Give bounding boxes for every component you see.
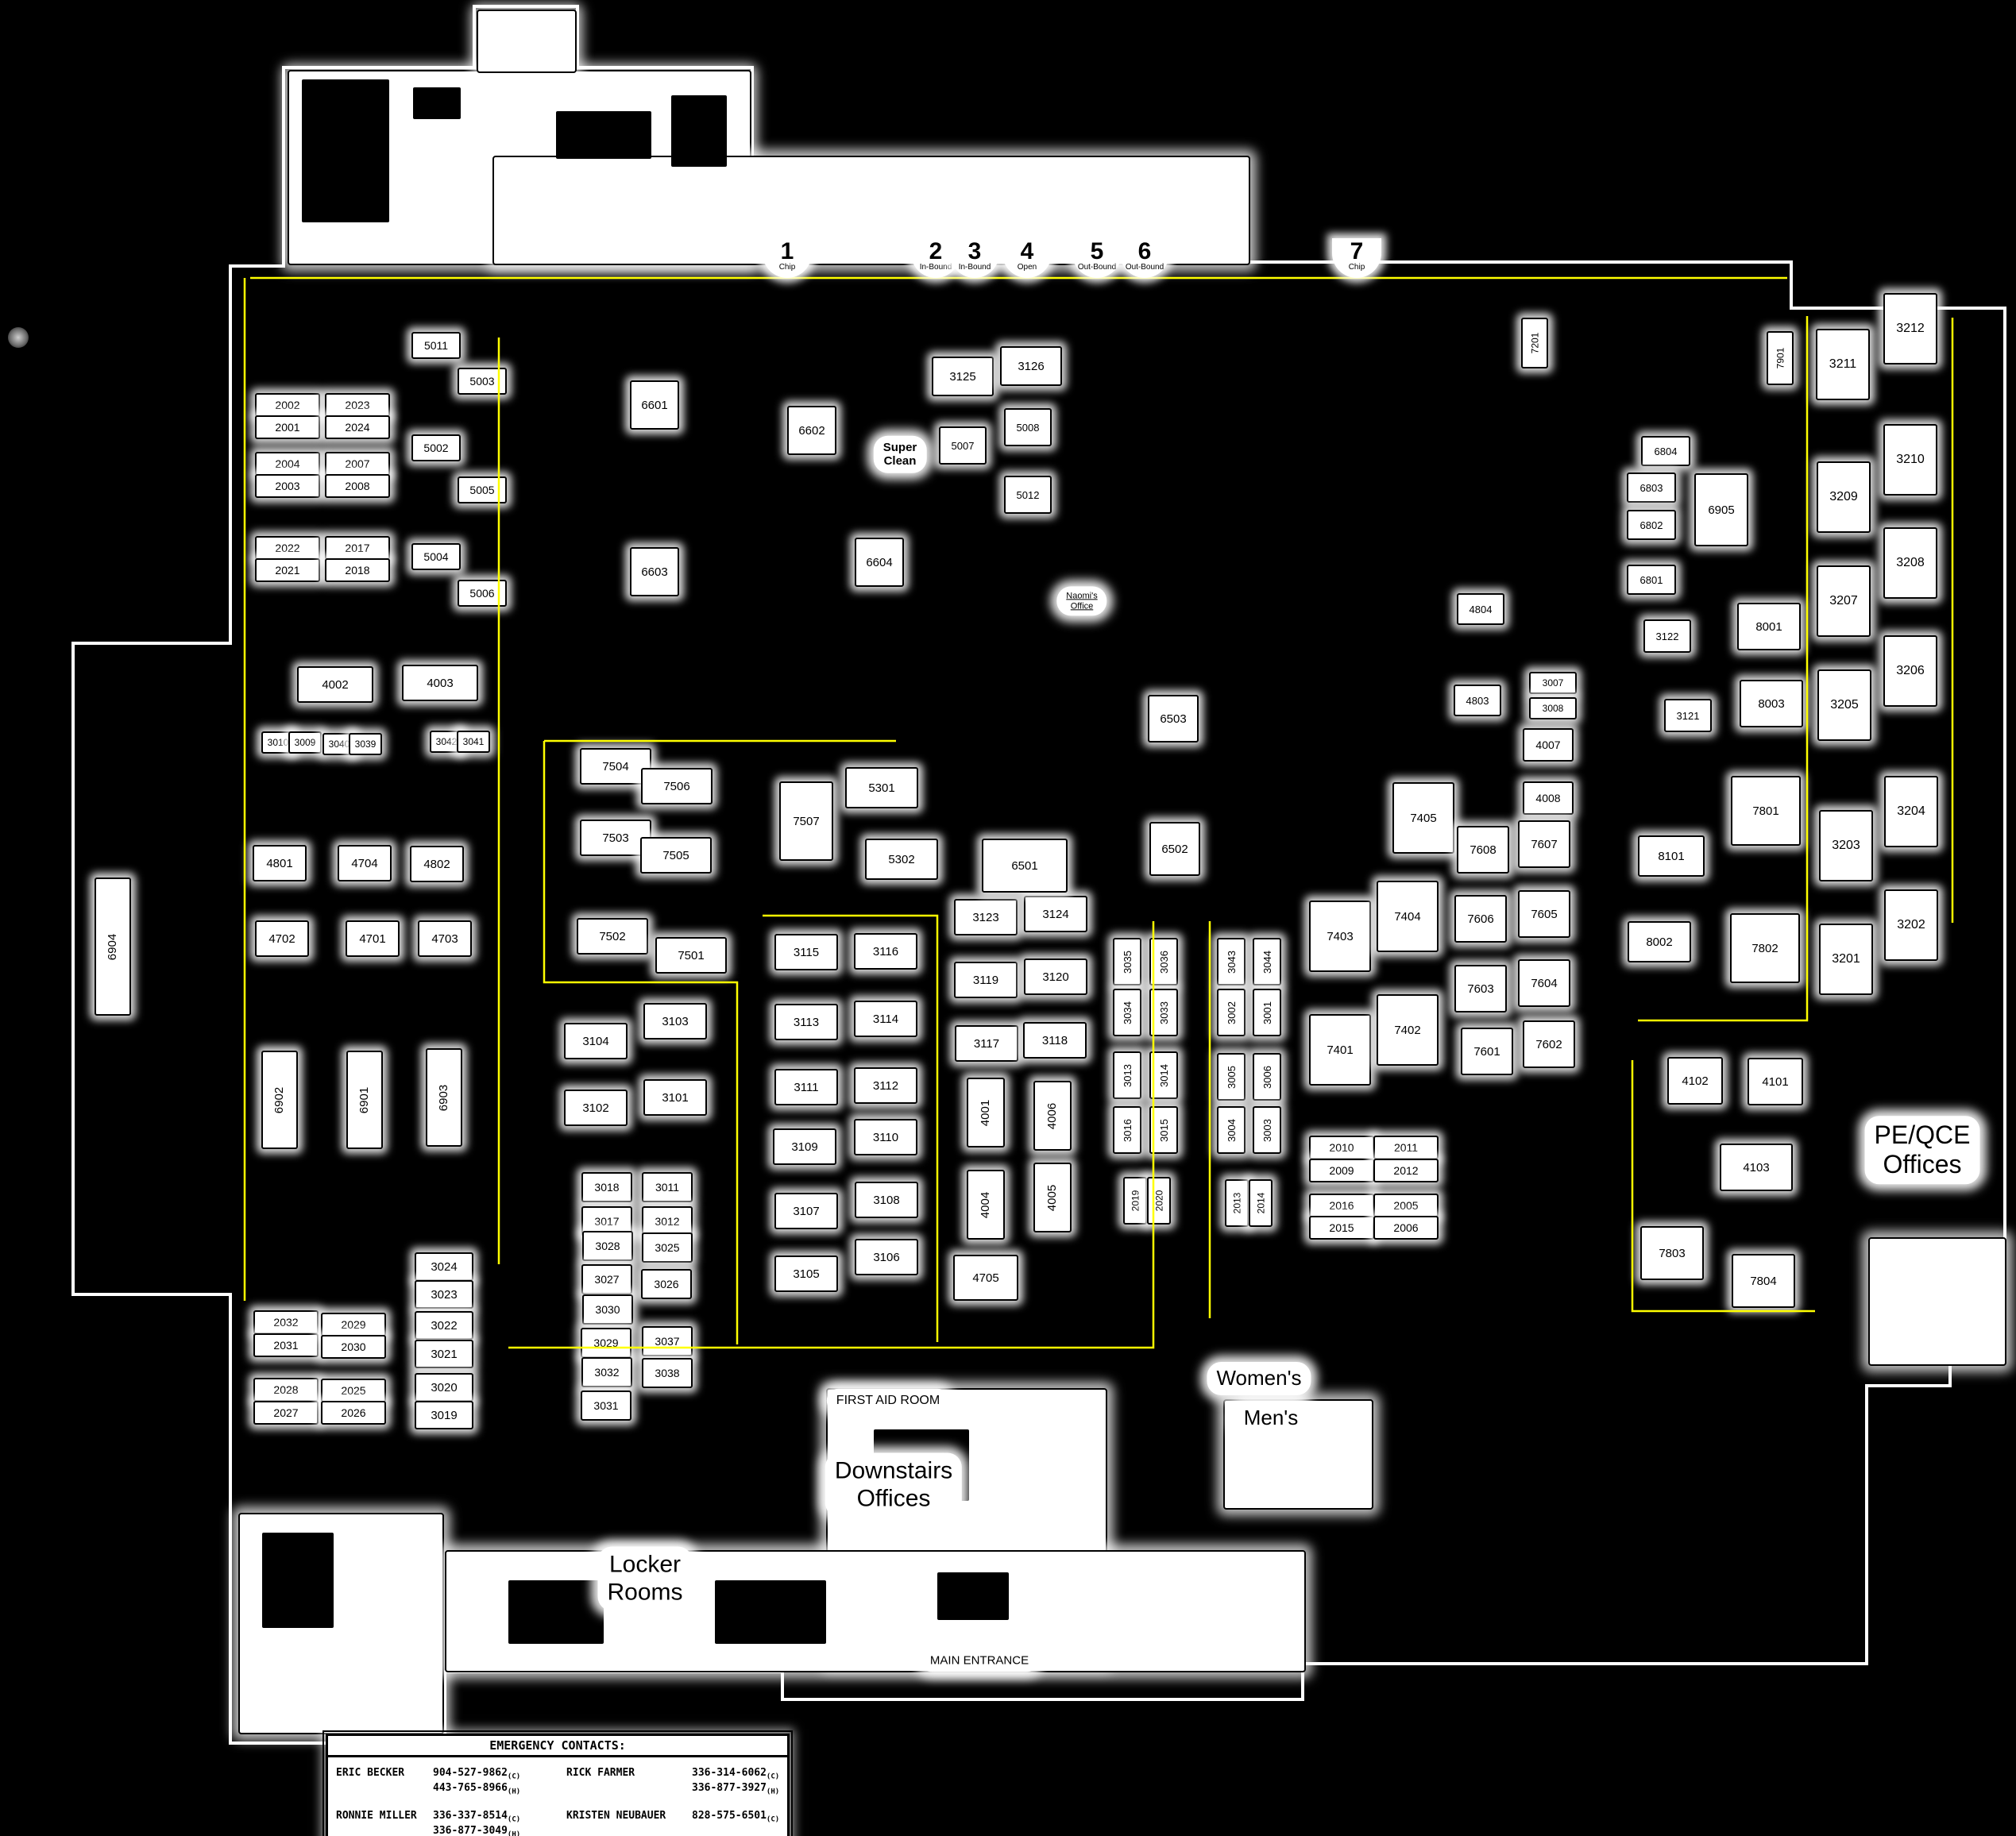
room-number: 2023 [345, 399, 369, 411]
room-number: 3019 [431, 1410, 457, 1421]
room-number: 3114 [873, 1013, 898, 1025]
room-number: 2020 [1154, 1190, 1164, 1212]
room-number: 3118 [1042, 1035, 1068, 1047]
room-number: 2007 [345, 458, 369, 469]
room-8003: 8003 [1740, 680, 1803, 727]
room-5007: 5007 [939, 426, 987, 465]
room-number: 7605 [1531, 908, 1557, 920]
room-3041: 3041 [457, 731, 490, 753]
room-number: 2003 [275, 480, 299, 492]
room-number: 5007 [952, 441, 975, 451]
smudge-dot [8, 327, 29, 348]
room-number: 3204 [1897, 805, 1925, 818]
room-number: 5008 [1017, 422, 1040, 433]
room-number: 6603 [641, 566, 667, 578]
room-number: 3042 [436, 737, 458, 746]
room-number: 7804 [1750, 1275, 1776, 1287]
phone-type: (C) [767, 1773, 779, 1781]
room-number: 3115 [794, 947, 819, 958]
room-7602: 7602 [1523, 1020, 1575, 1068]
room-number: 3016 [1122, 1119, 1132, 1142]
room-number: 2028 [273, 1384, 298, 1395]
room-number: 3126 [1018, 361, 1044, 372]
room-number: 7606 [1467, 913, 1493, 925]
room-3104: 3104 [564, 1023, 628, 1059]
room-number: 7602 [1535, 1039, 1562, 1051]
room-number: 2009 [1329, 1165, 1354, 1176]
room-7505: 7505 [640, 837, 712, 874]
room-7603: 7603 [1454, 965, 1507, 1012]
room-3025: 3025 [642, 1232, 693, 1263]
room-8101: 8101 [1638, 835, 1705, 877]
room-number: 2022 [275, 542, 299, 553]
room-number: 3117 [974, 1038, 999, 1050]
room-number: 3029 [593, 1337, 618, 1348]
room-number: 3212 [1896, 322, 1925, 335]
room-number: 3103 [662, 1016, 688, 1028]
room-number: 4102 [1682, 1075, 1708, 1087]
room-number: 3010 [268, 738, 289, 747]
room-3113: 3113 [774, 1004, 838, 1040]
room-6503: 6503 [1148, 695, 1199, 742]
room-number: 6602 [798, 425, 825, 437]
room-number: 6902 [274, 1086, 286, 1113]
label-downstairs-offices: Downstairs Offices [825, 1453, 962, 1518]
room-number: 7404 [1394, 911, 1420, 923]
room-number: 2011 [1394, 1142, 1418, 1153]
room-number: 3108 [873, 1194, 899, 1206]
room-number: 3026 [654, 1279, 678, 1290]
room-3110: 3110 [854, 1119, 917, 1155]
fixture [556, 111, 651, 159]
room-number: 3024 [431, 1261, 457, 1273]
room-number: 4002 [322, 679, 348, 691]
room-number: 3027 [594, 1274, 619, 1285]
room-2005: 2005 [1373, 1194, 1439, 1217]
room-number: 4101 [1762, 1076, 1788, 1088]
emergency-contacts-title: EMERGENCY CONTACTS: [328, 1736, 787, 1757]
room-3036: 3036 [1149, 938, 1178, 985]
room-7606: 7606 [1454, 895, 1507, 943]
room-number: 2002 [275, 399, 299, 411]
room-number: 3109 [791, 1141, 817, 1153]
room-number: 3116 [873, 946, 898, 958]
room-number: 5006 [469, 588, 494, 599]
room-number: 3001 [1261, 1001, 1272, 1024]
room-number: 3006 [1261, 1066, 1272, 1089]
room-2020: 2020 [1147, 1177, 1171, 1225]
room-3105: 3105 [774, 1255, 838, 1292]
room-2028: 2028 [253, 1378, 319, 1402]
room-7201: 7201 [1521, 318, 1548, 368]
room-3209: 3209 [1817, 461, 1871, 533]
room-number: 3021 [431, 1348, 457, 1360]
room-3125: 3125 [932, 357, 994, 396]
room-2002: 2002 [255, 393, 320, 417]
label-locker-rooms: Locker Rooms [597, 1547, 692, 1611]
room-2031: 2031 [253, 1333, 319, 1357]
room-4004: 4004 [967, 1170, 1005, 1240]
room-3116: 3116 [854, 933, 917, 970]
room-number: 7503 [602, 832, 628, 844]
room-number: 5301 [868, 782, 894, 794]
room-4801: 4801 [253, 845, 307, 881]
room-number: 3107 [793, 1205, 819, 1217]
room-number: 3205 [1830, 699, 1859, 712]
room-2024: 2024 [325, 415, 390, 439]
dock-door-type: Open [1002, 264, 1052, 272]
room-2006: 2006 [1373, 1216, 1439, 1240]
contact-name: RONNIE MILLER [336, 1810, 433, 1822]
room-number: 3009 [295, 738, 316, 747]
room-number: 3007 [1543, 678, 1564, 688]
room-7401: 7401 [1309, 1014, 1371, 1086]
room-3029: 3029 [581, 1328, 631, 1358]
label-super-clean: Super Clean [874, 436, 927, 473]
room-number: 4803 [1466, 696, 1489, 706]
phone-number: 336-877-3927 [692, 1782, 767, 1794]
room-number: 4702 [268, 933, 295, 945]
room-3119: 3119 [954, 962, 1018, 998]
room-7404: 7404 [1377, 881, 1439, 952]
fixture [302, 79, 389, 222]
room-number: 4802 [423, 858, 450, 870]
phone-type: (H) [767, 1788, 779, 1795]
room-3035: 3035 [1113, 938, 1141, 985]
floor-area [1868, 1237, 2006, 1366]
room-number: 6503 [1160, 713, 1186, 725]
room-6802: 6802 [1627, 510, 1676, 540]
room-7402: 7402 [1377, 994, 1439, 1066]
room-number: 7401 [1327, 1044, 1353, 1056]
room-2018: 2018 [325, 558, 390, 582]
room-3207: 3207 [1817, 565, 1871, 637]
room-number: 6804 [1655, 446, 1678, 457]
room-3114: 3114 [854, 1001, 917, 1037]
room-3011: 3011 [642, 1172, 693, 1202]
room-number: 7803 [1659, 1248, 1685, 1259]
room-3115: 3115 [774, 934, 838, 970]
room-number: 3110 [873, 1132, 898, 1144]
room-number: 3012 [655, 1216, 679, 1227]
room-number: 3018 [594, 1182, 619, 1193]
room-3112: 3112 [854, 1067, 917, 1104]
room-number: 7604 [1531, 978, 1557, 989]
dock-door-1: 1Chip [763, 238, 812, 278]
room-number: 3208 [1896, 557, 1925, 569]
room-number: 3037 [655, 1336, 679, 1347]
dock-door-5: 5Out-Bound [1072, 238, 1122, 278]
room-3107: 3107 [774, 1193, 838, 1229]
room-3001: 3001 [1253, 989, 1281, 1036]
room-4101: 4101 [1748, 1058, 1803, 1105]
room-number: 3011 [655, 1182, 679, 1193]
fixture [715, 1580, 826, 1644]
room-2009: 2009 [1309, 1159, 1374, 1182]
label-men-s: Men's [1234, 1402, 1308, 1435]
room-6501: 6501 [982, 839, 1068, 893]
room-3023: 3023 [415, 1280, 473, 1309]
dock-door-type: In-Bound [950, 264, 999, 272]
room-number: 6901 [359, 1086, 371, 1113]
room-7607: 7607 [1518, 820, 1570, 868]
room-number: 2004 [275, 458, 299, 469]
room-number: 2032 [273, 1317, 298, 1328]
contact-phones: 336-314-6062(C)336-877-3927(H) [692, 1767, 782, 1797]
room-number: 6502 [1161, 843, 1188, 855]
room-3027: 3027 [581, 1264, 632, 1294]
room-3203: 3203 [1819, 810, 1873, 881]
room-3013: 3013 [1113, 1051, 1141, 1099]
phone-number: 336-337-8514 [433, 1810, 508, 1822]
room-number: 3030 [595, 1304, 620, 1315]
room-3020: 3020 [415, 1373, 473, 1402]
room-7506: 7506 [641, 768, 713, 804]
room-number: 6905 [1708, 504, 1734, 516]
room-3102: 3102 [564, 1090, 628, 1126]
room-5008: 5008 [1004, 408, 1052, 446]
room-number: 6803 [1640, 483, 1663, 493]
room-5003: 5003 [458, 368, 507, 395]
room-3124: 3124 [1024, 896, 1087, 932]
room-number: 7402 [1394, 1024, 1420, 1036]
dock-door-6: 6Out-Bound [1120, 238, 1169, 278]
room-number: 3203 [1832, 839, 1860, 852]
room-2030: 2030 [321, 1335, 386, 1359]
room-number: 3028 [595, 1240, 620, 1252]
dock-door-number: 3 [950, 240, 999, 264]
room-number: 4007 [1535, 739, 1560, 750]
room-2012: 2012 [1373, 1159, 1439, 1182]
room-5011: 5011 [411, 332, 461, 359]
room-6901: 6901 [346, 1051, 383, 1149]
room-number: 3017 [594, 1216, 619, 1227]
phone-number: 904-527-9862 [433, 1767, 508, 1779]
room-3108: 3108 [855, 1182, 918, 1218]
room-3210: 3210 [1883, 424, 1937, 496]
room-3015: 3015 [1149, 1106, 1178, 1154]
room-number: 4001 [980, 1099, 992, 1125]
room-number: 2029 [341, 1319, 365, 1330]
room-7804: 7804 [1732, 1254, 1795, 1308]
dock-door-number: 6 [1120, 240, 1169, 264]
room-2021: 2021 [255, 558, 320, 582]
room-number: 2027 [273, 1407, 298, 1418]
room-number: 3004 [1226, 1119, 1236, 1142]
dock-door-number: 1 [763, 240, 812, 264]
room-2007: 2007 [325, 452, 390, 476]
room-3211: 3211 [1816, 329, 1870, 400]
phone-number: 336-877-3049 [433, 1825, 508, 1836]
label-naomi-s-office: Naomi's Office [1056, 586, 1106, 615]
room-number: 3022 [431, 1320, 457, 1332]
room-number: 7607 [1531, 839, 1557, 850]
room-3122: 3122 [1643, 619, 1691, 653]
room-2032: 2032 [253, 1310, 319, 1334]
room-number: 7601 [1473, 1046, 1500, 1058]
room-number: 7506 [663, 781, 689, 793]
room-number: 3122 [1656, 631, 1679, 642]
room-number: 6903 [438, 1084, 450, 1110]
room-number: 3020 [431, 1382, 457, 1394]
room-number: 7901 [1775, 348, 1785, 369]
room-number: 3120 [1042, 971, 1068, 983]
room-number: 6904 [107, 933, 119, 959]
room-number: 7507 [793, 816, 819, 827]
dock-door-type: Chip [1332, 264, 1381, 272]
dock-door-number: 7 [1332, 240, 1381, 264]
room-3005: 3005 [1217, 1053, 1246, 1101]
room-number: 3125 [949, 371, 975, 383]
room-7802: 7802 [1730, 913, 1800, 983]
phone-number: 443-765-8966 [433, 1782, 508, 1794]
room-2011: 2011 [1373, 1136, 1439, 1159]
room-2001: 2001 [255, 415, 320, 439]
contact-name: RICK FARMER [566, 1767, 692, 1779]
room-number: 5002 [423, 442, 448, 453]
room-number: 5004 [423, 551, 448, 562]
room-number: 3202 [1897, 919, 1925, 931]
fixture [508, 1580, 604, 1644]
emergency-contacts-grid: ERIC BECKER904-527-9862(C)443-765-8966(H… [328, 1757, 787, 1836]
room-3120: 3120 [1024, 958, 1087, 995]
room-3030: 3030 [582, 1294, 633, 1325]
room-6905: 6905 [1694, 473, 1748, 546]
room-6602: 6602 [787, 406, 836, 455]
room-number: 3106 [873, 1252, 899, 1263]
room-number: 2018 [345, 565, 369, 576]
room-5006: 5006 [458, 580, 507, 607]
room-4702: 4702 [255, 920, 309, 957]
room-number: 3121 [1677, 711, 1700, 721]
room-4704: 4704 [338, 845, 392, 881]
room-number: 3201 [1832, 953, 1860, 966]
room-7501: 7501 [655, 937, 727, 974]
room-5302: 5302 [865, 839, 938, 880]
room-7901: 7901 [1767, 331, 1794, 385]
room-number: 3040 [329, 739, 350, 749]
room-number: 7502 [599, 931, 625, 943]
room-number: 2024 [345, 422, 369, 433]
room-number: 3032 [594, 1367, 619, 1378]
room-number: 2031 [273, 1340, 298, 1351]
fixture [413, 87, 461, 119]
room-6903: 6903 [426, 1048, 462, 1147]
room-3118: 3118 [1023, 1022, 1087, 1059]
dock-door-4: 4Open [1002, 238, 1052, 278]
room-number: 3123 [972, 912, 998, 924]
room-2019: 2019 [1123, 1177, 1147, 1225]
room-number: 6802 [1640, 520, 1663, 530]
room-6804: 6804 [1641, 436, 1690, 466]
room-3212: 3212 [1883, 293, 1937, 364]
room-3206: 3206 [1883, 635, 1937, 707]
room-number: 3035 [1122, 951, 1132, 974]
contact-phones: 904-527-9862(C)443-765-8966(H) [433, 1767, 566, 1797]
room-3028: 3028 [582, 1231, 633, 1261]
room-number: 2008 [345, 480, 369, 492]
room-number: 8001 [1755, 621, 1782, 633]
room-3016: 3016 [1113, 1106, 1141, 1154]
room-8001: 8001 [1737, 603, 1801, 650]
label-first-aid-room: FIRST AID ROOM [827, 1389, 949, 1413]
room-3111: 3111 [774, 1069, 838, 1105]
room-number: 3038 [655, 1367, 679, 1379]
room-3021: 3021 [415, 1340, 473, 1368]
phone-type: (H) [508, 1788, 520, 1795]
room-4703: 4703 [418, 920, 472, 957]
dock-door-type: Chip [763, 264, 812, 272]
room-3044: 3044 [1253, 938, 1281, 985]
room-3123: 3123 [954, 899, 1018, 935]
room-number: 3002 [1226, 1001, 1236, 1024]
room-4804: 4804 [1457, 593, 1504, 625]
room-3103: 3103 [643, 1003, 707, 1039]
room-number: 6801 [1640, 575, 1663, 585]
room-3019: 3019 [415, 1401, 473, 1429]
room-3037: 3037 [642, 1326, 693, 1356]
room-3034: 3034 [1113, 989, 1141, 1036]
phone-number: 828-575-6501 [692, 1810, 767, 1822]
fixture [262, 1533, 334, 1628]
room-3109: 3109 [773, 1128, 836, 1165]
room-number: 4804 [1470, 604, 1493, 615]
room-number: 3119 [973, 974, 998, 986]
room-number: 7403 [1327, 931, 1353, 943]
floor-area [477, 10, 577, 73]
room-3033: 3033 [1149, 989, 1178, 1036]
room-2027: 2027 [253, 1401, 319, 1425]
room-number: 7504 [602, 761, 628, 773]
room-2003: 2003 [255, 474, 320, 498]
room-2016: 2016 [1309, 1194, 1374, 1217]
room-number: 3112 [873, 1080, 898, 1092]
room-number: 3005 [1226, 1066, 1236, 1089]
contact-phones: 828-575-6501(C) [692, 1810, 782, 1825]
room-4802: 4802 [410, 846, 464, 882]
room-number: 5302 [888, 854, 914, 866]
room-number: 2001 [275, 422, 299, 433]
room-number: 7608 [1470, 844, 1496, 856]
room-number: 2014 [1256, 1193, 1265, 1214]
room-number: 4103 [1743, 1162, 1769, 1174]
room-3002: 3002 [1217, 989, 1246, 1036]
contact-name: KRISTEN NEUBAUER [566, 1810, 692, 1822]
room-3032: 3032 [581, 1357, 632, 1387]
room-5301: 5301 [845, 767, 918, 808]
room-number: 4801 [266, 858, 292, 870]
room-number: 2005 [1393, 1200, 1418, 1211]
room-3101: 3101 [643, 1079, 707, 1116]
room-number: 2030 [341, 1341, 365, 1352]
room-number: 5005 [469, 484, 494, 496]
room-3031: 3031 [581, 1390, 631, 1421]
room-3205: 3205 [1817, 669, 1871, 741]
fixture [671, 95, 727, 167]
room-number: 6604 [866, 557, 892, 569]
room-number: 3211 [1829, 358, 1856, 371]
room-number: 3044 [1261, 951, 1272, 974]
room-number: 3124 [1042, 908, 1068, 920]
room-number: 2025 [341, 1385, 365, 1396]
room-3202: 3202 [1884, 889, 1938, 961]
room-number: 3008 [1543, 704, 1564, 713]
facility-floor-plan: EMERGENCY CONTACTS: ERIC BECKER904-527-9… [0, 0, 2016, 1836]
room-7801: 7801 [1731, 776, 1801, 846]
room-number: 2010 [1329, 1142, 1354, 1153]
phone-number: 336-314-6062 [692, 1767, 767, 1779]
room-3006: 3006 [1253, 1053, 1281, 1101]
